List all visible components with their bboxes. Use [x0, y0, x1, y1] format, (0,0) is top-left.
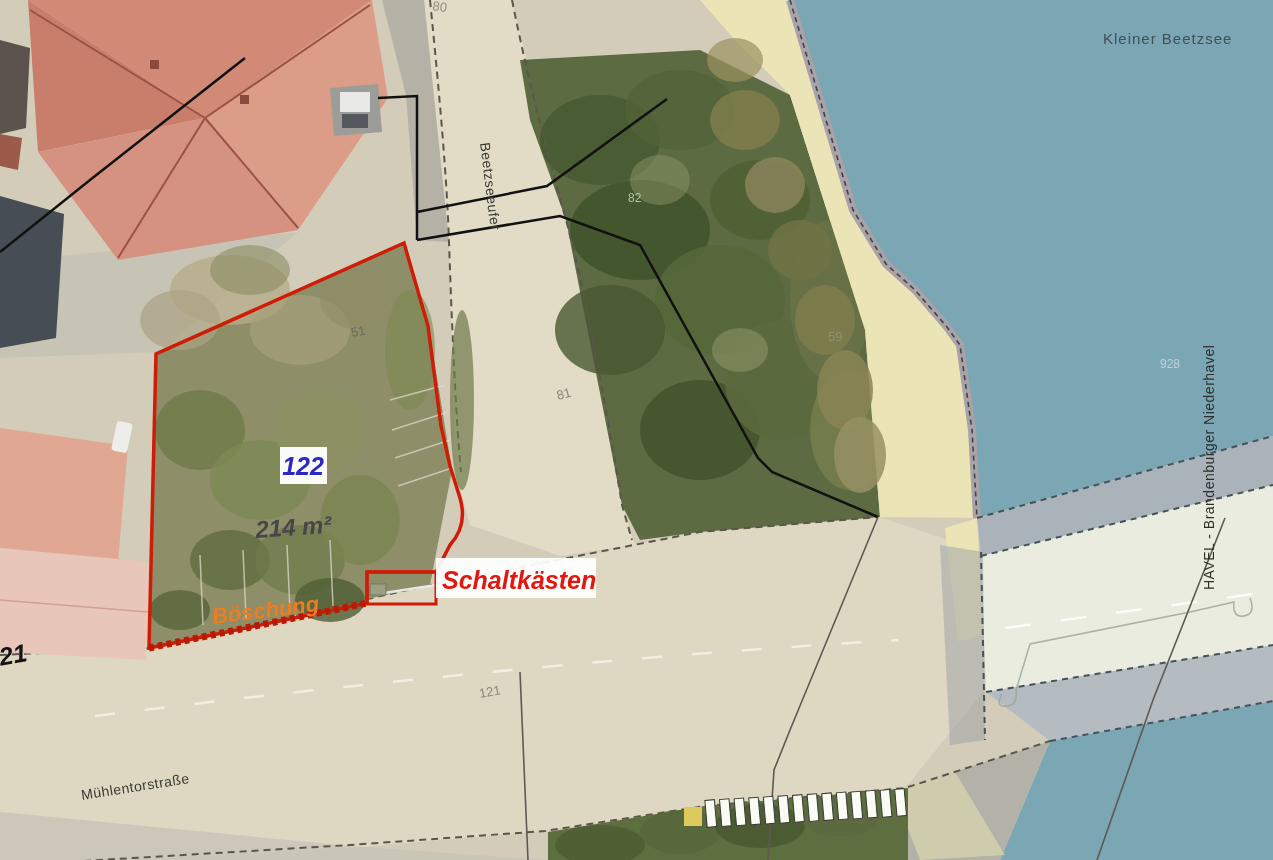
- yellow-utility-marker: [684, 807, 702, 826]
- label-parcel-122: 122: [282, 452, 324, 480]
- label-kleiner-beetzsee: Kleiner Beetzsee: [1103, 30, 1232, 47]
- label-plot-51: 51: [350, 323, 367, 340]
- label-schaltkaesten: Schaltkästen: [442, 566, 596, 594]
- building-pink-mid-left: [0, 428, 128, 562]
- label-plot-80: 80: [432, 0, 448, 15]
- building-dark-left: [0, 196, 64, 348]
- aerial-map-canvas[interactable]: Kleiner Beetzsee Beetzseeufer Mühlentors…: [0, 0, 1273, 860]
- map-svg: Kleiner Beetzsee Beetzseeufer Mühlentors…: [0, 0, 1273, 860]
- building-dark-top-left: [0, 40, 30, 134]
- label-area-214: 214 m²: [253, 511, 333, 543]
- label-plot-82: 82: [628, 191, 642, 205]
- label-gauge-928: 928: [1160, 357, 1180, 371]
- building-annex-gray: [330, 84, 382, 136]
- switchbox-object: [370, 584, 386, 595]
- label-plot-59: 59: [828, 329, 842, 344]
- label-havel: HAVEL - Brandenburger Niederhavel: [1201, 345, 1217, 590]
